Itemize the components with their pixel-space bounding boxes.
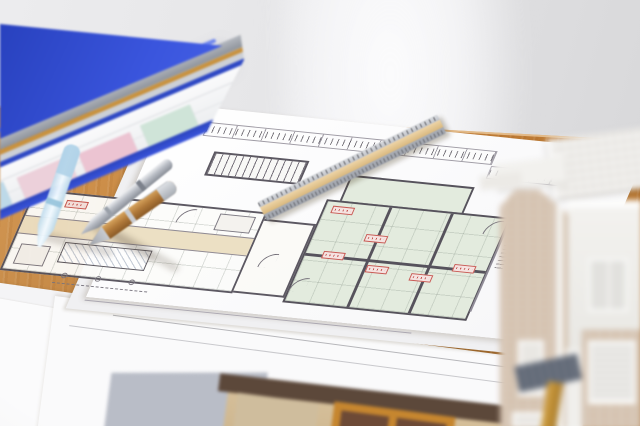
pen-rear-metal: [156, 178, 179, 201]
pen-band: [45, 197, 63, 208]
pens-group: [0, 0, 640, 426]
pen-band: [124, 208, 137, 223]
pen-cap: [56, 142, 82, 178]
pen-band: [104, 206, 115, 218]
pen-band: [135, 179, 146, 191]
photo-scene: [0, 0, 640, 426]
